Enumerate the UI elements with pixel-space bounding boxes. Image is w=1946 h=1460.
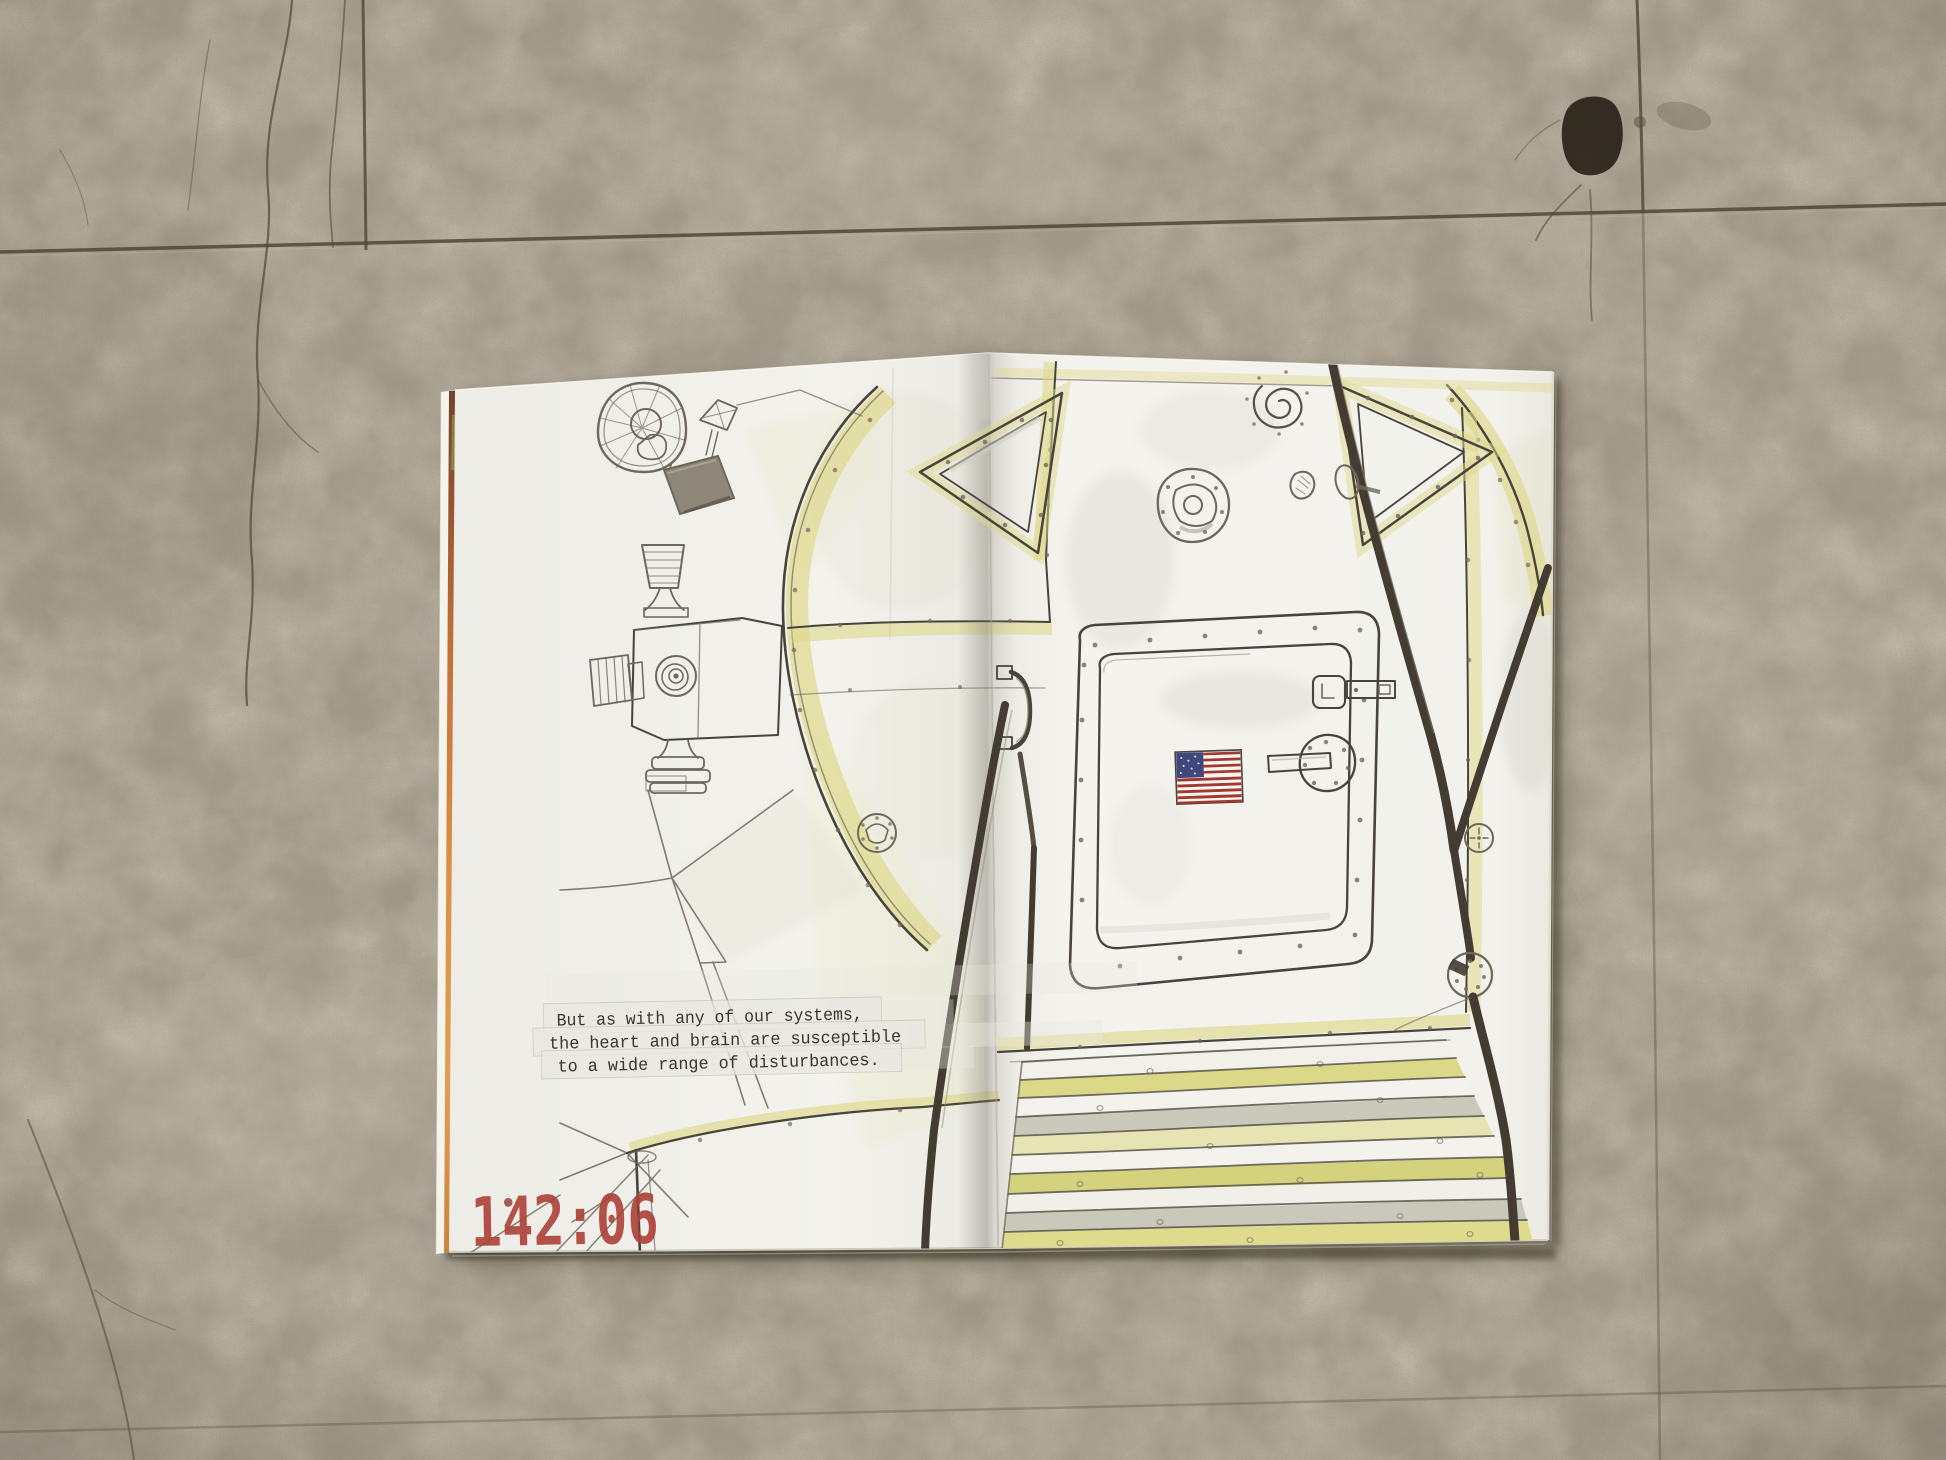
photo-canvas: But as with any of our systems, the hear… — [0, 0, 1946, 1460]
photo-vignette — [0, 0, 1946, 1460]
photo-scene: But as with any of our systems, the hear… — [0, 0, 1946, 1460]
